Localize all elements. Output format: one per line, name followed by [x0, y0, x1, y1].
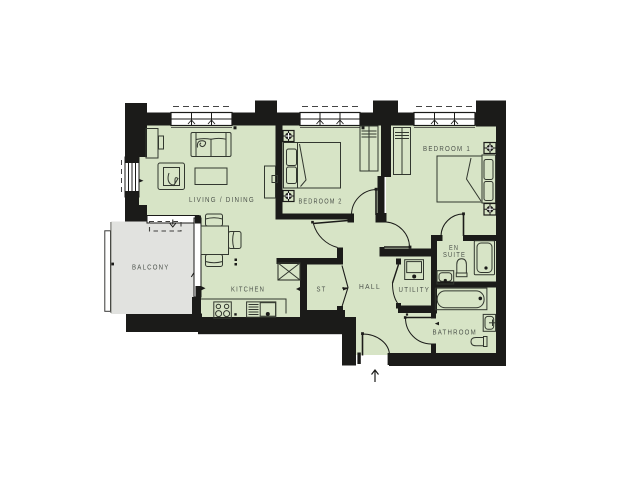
- svg-text:BEDROOM 2: BEDROOM 2: [299, 197, 343, 206]
- svg-text:ST: ST: [317, 285, 327, 294]
- svg-text:BEDROOM 1: BEDROOM 1: [423, 144, 471, 153]
- svg-text:SUITE: SUITE: [443, 250, 466, 259]
- svg-text:HALL: HALL: [359, 282, 381, 291]
- svg-text:BALCONY: BALCONY: [132, 263, 170, 272]
- svg-text:UTILITY: UTILITY: [399, 285, 431, 294]
- svg-text:KITCHEN: KITCHEN: [231, 285, 265, 294]
- svg-text:BATHROOM: BATHROOM: [432, 328, 477, 337]
- svg-text:LIVING / DINING: LIVING / DINING: [189, 195, 255, 204]
